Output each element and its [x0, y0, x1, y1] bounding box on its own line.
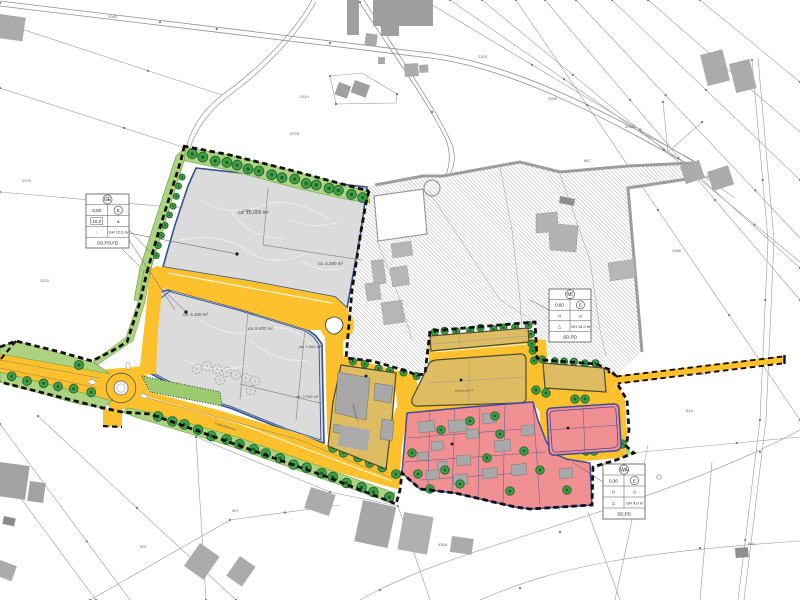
- svg-text:WA: WA: [620, 467, 629, 473]
- svg-text:SD,PD: SD,PD: [563, 335, 578, 340]
- svg-text:△: △: [558, 324, 562, 329]
- svg-text:2119: 2119: [300, 94, 309, 99]
- svg-text:0,80: 0,80: [92, 208, 101, 213]
- svg-text:ca. 8.400 m²: ca. 8.400 m²: [248, 326, 274, 331]
- svg-text:907: 907: [232, 508, 239, 513]
- svg-text:2079: 2079: [40, 278, 50, 283]
- svg-text:GH 14,0 m: GH 14,0 m: [571, 324, 591, 329]
- svg-text:△: △: [612, 500, 616, 505]
- svg-text:GH 9,0 m: GH 9,0 m: [626, 500, 644, 505]
- svg-text:GH 12,0 m: GH 12,0 m: [109, 230, 129, 235]
- svg-text:ca. 2.700 m²: ca. 2.700 m²: [296, 394, 319, 399]
- svg-text:SO,PO,FD: SO,PO,FD: [97, 240, 119, 245]
- svg-text:0,60: 0,60: [555, 303, 564, 308]
- svg-text:II: II: [558, 313, 561, 318]
- svg-text:ca. 15.000 m²: ca. 15.000 m²: [238, 210, 269, 216]
- svg-text:E: E: [579, 303, 582, 308]
- svg-text:2083: 2083: [108, 14, 118, 19]
- svg-text:·: ·: [96, 230, 98, 235]
- svg-text:MI: MI: [567, 292, 573, 298]
- svg-text:II: II: [612, 489, 615, 494]
- svg-text:GE: GE: [104, 197, 112, 203]
- svg-text:2068: 2068: [672, 248, 682, 253]
- svg-text:SD,PD: SD,PD: [617, 511, 632, 516]
- svg-text:2103: 2103: [478, 54, 488, 59]
- svg-text:2078: 2078: [290, 131, 300, 136]
- svg-text:20581: 20581: [625, 124, 637, 129]
- svg-text:901: 901: [140, 544, 147, 549]
- svg-text:E: E: [117, 208, 120, 213]
- svg-text:614: 614: [686, 408, 693, 413]
- svg-text:10,0: 10,0: [92, 219, 101, 224]
- svg-text:ca. 1.000 m²: ca. 1.000 m²: [299, 344, 322, 349]
- svg-text:E: E: [633, 478, 636, 483]
- svg-text:0,30: 0,30: [609, 478, 618, 483]
- svg-text:2075: 2075: [22, 178, 32, 183]
- svg-text:4304: 4304: [438, 542, 448, 547]
- svg-text:ca. 2.200 m²: ca. 2.200 m²: [318, 261, 344, 266]
- svg-text:667: 667: [584, 158, 591, 163]
- svg-text:2099: 2099: [548, 96, 558, 101]
- svg-text:660: 660: [748, 541, 755, 546]
